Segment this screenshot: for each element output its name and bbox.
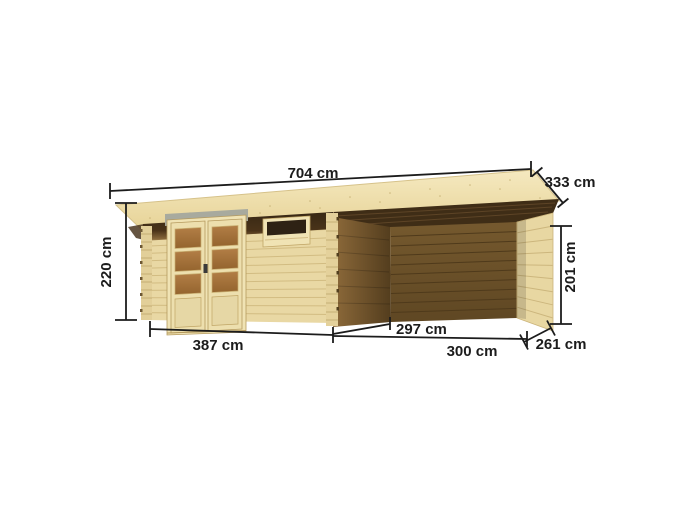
window xyxy=(263,216,310,247)
window-opening xyxy=(267,220,306,236)
corner-logs-right xyxy=(326,213,339,326)
label-shed-width: 387 cm xyxy=(193,337,244,354)
label-roof-width: 704 cm xyxy=(288,165,339,182)
shed-diagram: 704 cm 333 cm 220 cm 201 cm 387 cm 297 c… xyxy=(0,0,700,525)
door-handle xyxy=(204,264,208,273)
label-canopy-depth: 261 cm xyxy=(536,336,587,353)
label-roof-depth: 333 cm xyxy=(545,174,596,191)
canopy xyxy=(333,199,559,331)
product-dimension-image: 704 cm 333 cm 220 cm 201 cm 387 cm 297 c… xyxy=(0,0,700,525)
label-height-right: 201 cm xyxy=(562,242,579,293)
label-height-left: 220 cm xyxy=(98,237,115,288)
corner-logs-left xyxy=(140,226,152,320)
label-canopy-inner-depth: 297 cm xyxy=(396,321,447,338)
label-canopy-width: 300 cm xyxy=(447,343,498,360)
shed-front xyxy=(140,209,339,335)
double-door xyxy=(165,209,248,335)
canopy-right-wall-corner-shade xyxy=(517,220,526,319)
